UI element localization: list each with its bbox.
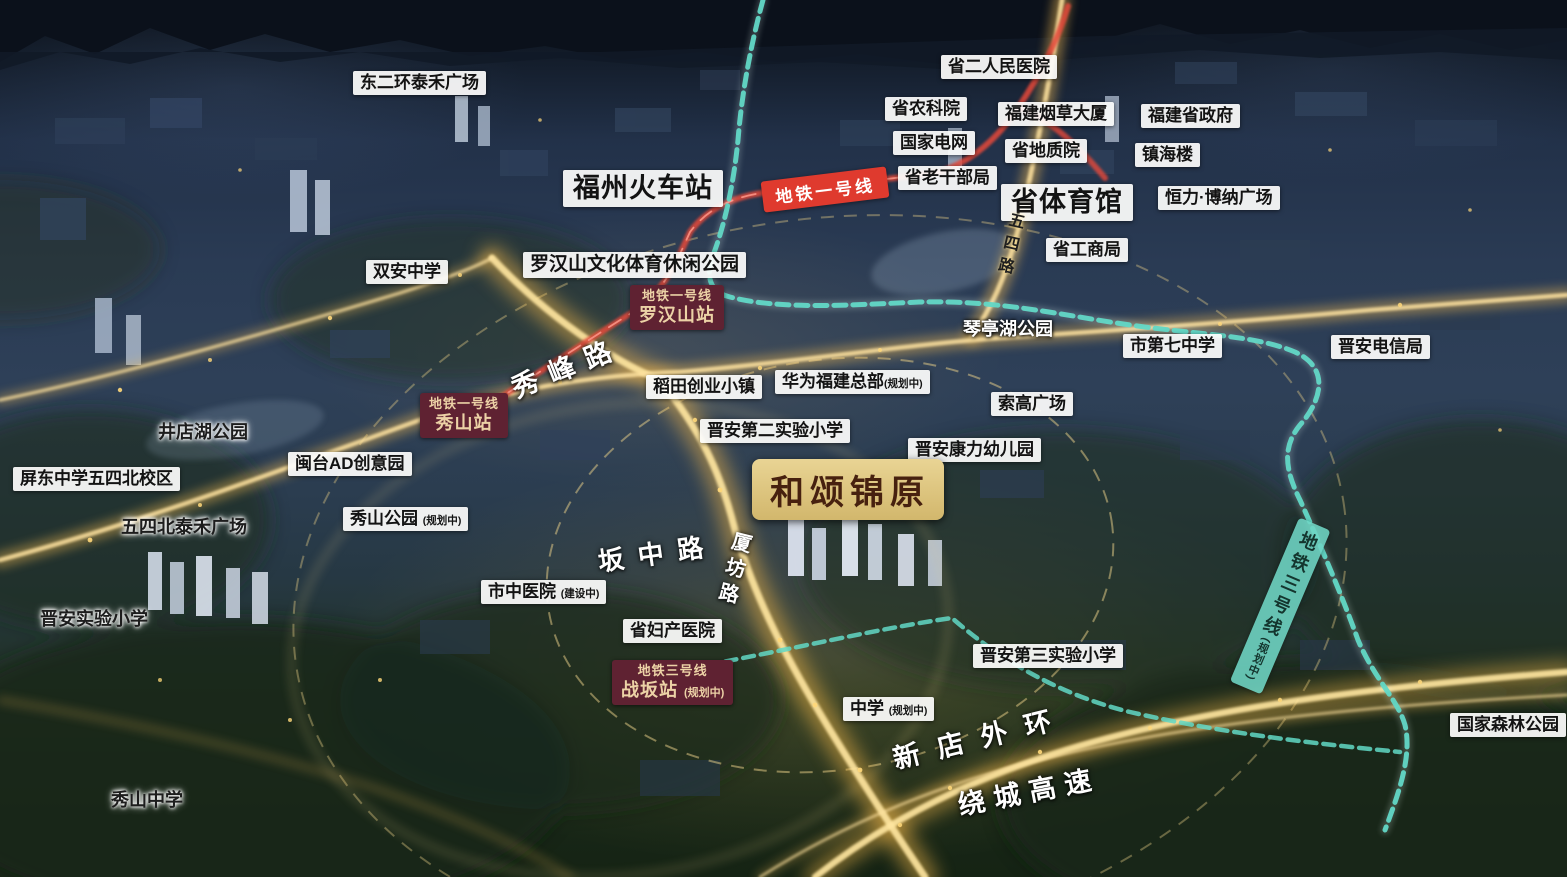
- label-provincial-geology-institute: 省地质院: [1005, 139, 1087, 163]
- label-pingdong-middle-school-wusibei: 屏东中学五四北校区: [13, 467, 180, 491]
- label-zhenhai-tower: 镇海楼: [1135, 143, 1200, 167]
- label-provincial-maternity-hospital: 省妇产医院: [623, 619, 722, 643]
- label-state-grid: 国家电网: [893, 131, 975, 155]
- label-wusibei-taihe-plaza: 五四北泰禾广场: [121, 513, 247, 539]
- label-jinan-experimental-primary: 晋安实验小学: [40, 605, 148, 631]
- label-fuzhou-railway-station: 福州火车站: [563, 170, 723, 207]
- label-luohanshan-culture-sports-park: 罗汉山文化体育休闲公园: [523, 252, 746, 278]
- label-jinan-third-experimental-primary: 晋安第三实验小学: [973, 644, 1123, 668]
- label-no7-middle-school: 市第七中学: [1123, 334, 1222, 358]
- label-hengli-bona-plaza: 恒力·博纳广场: [1158, 186, 1280, 210]
- station-badge-zhanban: 地铁三号线 战坂站 (规划中): [612, 660, 733, 705]
- label-provincial-agri-academy: 省农科院: [885, 97, 967, 121]
- mountain-ridges: [0, 0, 1567, 70]
- label-shuangan-middle-school: 双安中学: [366, 260, 448, 284]
- label-jinan-kangli-kindergarten: 晋安康力幼儿园: [908, 438, 1041, 462]
- station-badge-luohanshan: 地铁一号线 罗汉山站: [630, 285, 724, 330]
- label-city-tcm-hospital: 市中医院 (建设中): [481, 580, 606, 604]
- label-national-forest-park: 国家森林公园: [1450, 713, 1566, 737]
- label-jinan-second-experimental-primary: 晋安第二实验小学: [700, 419, 850, 443]
- label-provincial-second-peoples-hospital: 省二人民医院: [941, 55, 1057, 79]
- station-badge-xiushan: 地铁一号线 秀山站: [420, 393, 508, 438]
- label-jinan-telecom-bureau: 晋安电信局: [1331, 335, 1430, 359]
- label-mintai-ad-creative-park: 闽台AD创意园: [288, 452, 412, 476]
- label-daotian-startup-town: 稻田创业小镇: [646, 375, 762, 399]
- label-provincial-aic-bureau: 省工商局: [1046, 238, 1128, 262]
- night-aerial-map: 东二环泰禾广场 福州火车站 省二人民医院 省农科院 福建烟草大厦 福建省政府 国…: [0, 0, 1567, 877]
- label-xiushan-middle-school: 秀山中学: [111, 786, 183, 812]
- label-jingdianhu-park: 井店湖公园: [158, 418, 248, 444]
- label-dongerhuan-taihe-plaza: 东二环泰禾广场: [353, 71, 486, 95]
- label-qintinghu-park: 琴亭湖公园: [963, 315, 1053, 341]
- label-fujian-tobacco-tower: 福建烟草大厦: [998, 102, 1114, 126]
- label-huawei-fujian-hq: 华为福建总部(规划中): [775, 370, 930, 394]
- label-suogao-plaza: 索高广场: [991, 392, 1073, 416]
- label-fujian-provincial-government: 福建省政府: [1141, 104, 1240, 128]
- project-badge: 和颂锦原: [752, 459, 944, 520]
- label-provincial-veteran-cadre-bureau: 省老干部局: [898, 166, 997, 190]
- label-xiushan-park: 秀山公园 (规划中): [343, 507, 468, 531]
- label-planned-middle-school: 中学 (规划中): [843, 697, 934, 721]
